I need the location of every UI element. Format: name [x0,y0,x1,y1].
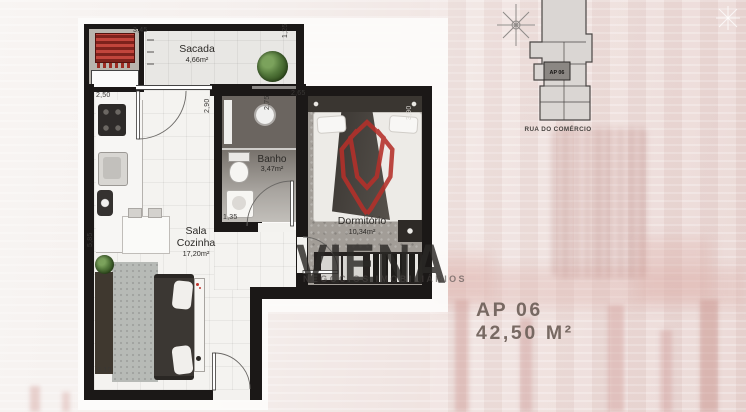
room-name: Sala [150,226,242,238]
room-area: 4,66m² [157,56,237,64]
entry-door-leaf [213,353,216,390]
dimension-label: 1,35 [223,214,237,221]
banho-label: Banho 3,47m² [245,154,299,173]
banho-door-opening [258,223,294,232]
dimension-label: 3,45 [133,27,147,34]
unit-number: AP 06 [476,299,574,322]
dimension-label: 3,10 [97,367,111,374]
room-name: Sacada [157,44,237,56]
dimension-label: 5,85 [87,233,94,247]
banho-door-leaf [291,181,294,226]
dimension-label: 3,90 [406,106,413,120]
entry-door-arc [214,353,250,389]
dimension-label: 2,90 [204,99,211,113]
dimension-label: 2,65 [291,90,305,97]
unit-info: AP 06 42,50 M² [476,299,574,345]
room-area: 17,20m² [150,250,242,258]
entry-door-opening [213,390,250,400]
sala-cozinha-label: Sala Cozinha 17,20m² [150,226,242,258]
sacada-door-arc [138,91,186,139]
unit-area: 42,50 M² [476,322,574,345]
viena-tulip-logo-icon [328,116,406,218]
room-area: 3,47m² [245,165,299,173]
floor-plan-page: Sacada 4,66m² Banho 3,47m² Sala Cozinha … [0,0,746,412]
dimension-label: 1,25 [282,24,289,38]
banho-door-arc [247,181,292,226]
sacada-door-leaf [137,91,140,139]
room-name: Cozinha [150,238,242,250]
watermark-brand: VIENA [296,231,448,296]
sacada-label: Sacada 4,66m² [157,44,237,64]
dimension-label: 2,75 [264,96,271,110]
dimension-label: 2,50 [96,92,110,99]
watermark-tagline: NEGÓCIOS IMOBILIÁRIOS [303,274,467,284]
